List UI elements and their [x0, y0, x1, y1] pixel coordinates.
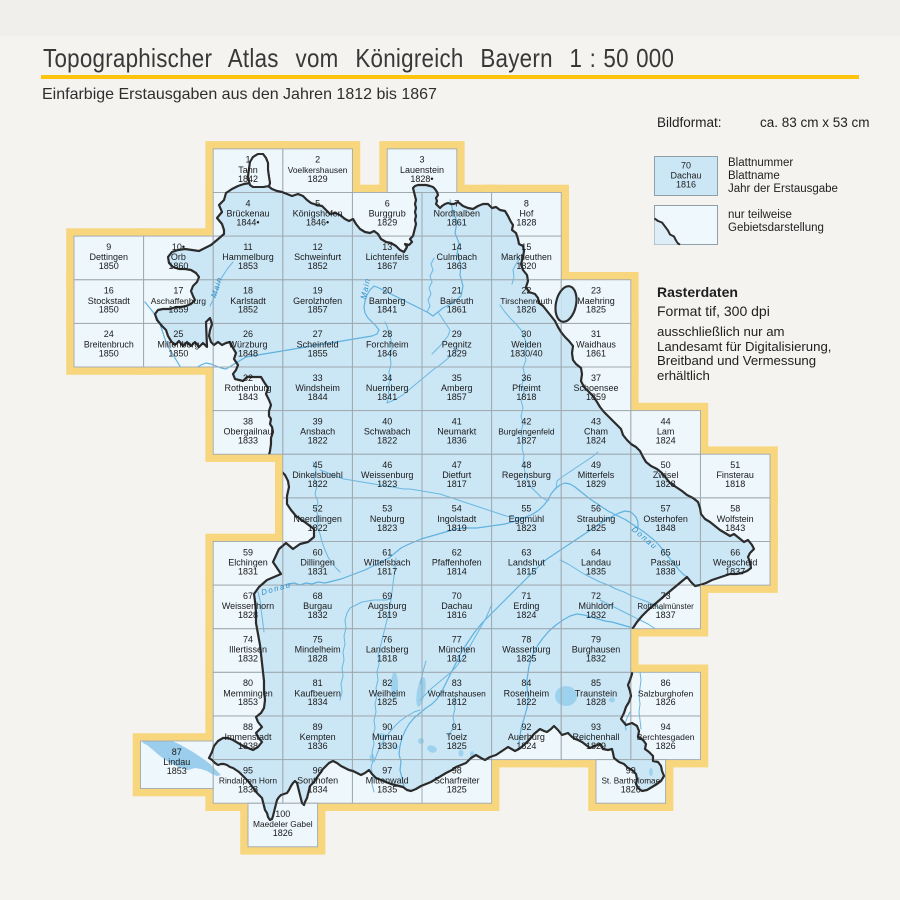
svg-text:19: 19 — [313, 286, 323, 296]
svg-text:34: 34 — [382, 373, 392, 383]
svg-text:1817: 1817 — [377, 566, 397, 576]
svg-text:18: 18 — [243, 286, 253, 296]
svg-text:100: 100 — [275, 809, 290, 819]
svg-text:98: 98 — [452, 765, 462, 775]
svg-text:44: 44 — [661, 416, 671, 426]
svg-text:1825: 1825 — [377, 697, 397, 707]
svg-text:27: 27 — [313, 329, 323, 339]
svg-text:1846: 1846 — [377, 348, 397, 358]
svg-text:1848: 1848 — [238, 348, 258, 358]
svg-text:1857: 1857 — [308, 305, 328, 315]
svg-text:43: 43 — [591, 416, 601, 426]
svg-text:1822: 1822 — [308, 479, 328, 489]
svg-text:1819: 1819 — [447, 523, 467, 533]
svg-text:78: 78 — [521, 635, 531, 645]
svg-text:1838: 1838 — [238, 741, 258, 751]
svg-text:57: 57 — [661, 504, 671, 514]
svg-text:1861: 1861 — [586, 348, 606, 358]
svg-text:33: 33 — [313, 373, 323, 383]
svg-text:53: 53 — [382, 504, 392, 514]
svg-text:1819: 1819 — [377, 610, 397, 620]
svg-text:1: 1 — [245, 155, 250, 165]
svg-text:1831: 1831 — [308, 566, 328, 576]
svg-text:42: 42 — [521, 416, 531, 426]
svg-text:1832: 1832 — [238, 654, 258, 664]
svg-text:1835: 1835 — [586, 566, 606, 576]
svg-text:1825: 1825 — [447, 785, 467, 795]
svg-text:1834: 1834 — [308, 785, 328, 795]
svg-text:85: 85 — [591, 678, 601, 688]
svg-text:1832: 1832 — [586, 654, 606, 664]
svg-text:1836: 1836 — [447, 436, 467, 446]
svg-text:1829: 1829 — [586, 741, 606, 751]
svg-text:11: 11 — [243, 242, 252, 252]
svg-text:14: 14 — [452, 242, 462, 252]
svg-text:1819: 1819 — [516, 479, 536, 489]
svg-text:26: 26 — [243, 329, 253, 339]
svg-text:1815: 1815 — [516, 566, 536, 576]
svg-text:1850: 1850 — [168, 348, 188, 358]
svg-text:1835: 1835 — [377, 785, 397, 795]
svg-text:51: 51 — [730, 460, 740, 470]
svg-text:1857: 1857 — [447, 392, 467, 402]
svg-text:91: 91 — [452, 722, 462, 732]
svg-text:1823: 1823 — [377, 479, 397, 489]
svg-text:1812: 1812 — [447, 654, 467, 664]
svg-text:99: 99 — [626, 765, 636, 775]
svg-text:93: 93 — [591, 722, 601, 732]
svg-text:64: 64 — [591, 547, 601, 557]
svg-text:1861: 1861 — [447, 217, 467, 227]
svg-text:59: 59 — [243, 547, 253, 557]
svg-text:68: 68 — [313, 591, 323, 601]
svg-text:67: 67 — [243, 591, 253, 601]
svg-text:84: 84 — [521, 678, 531, 688]
svg-text:6: 6 — [385, 198, 390, 208]
svg-text:5: 5 — [315, 198, 320, 208]
svg-text:1826: 1826 — [656, 741, 676, 751]
svg-text:17: 17 — [173, 286, 183, 296]
svg-text:1860: 1860 — [168, 261, 188, 271]
svg-text:82: 82 — [382, 678, 392, 688]
svg-text:70: 70 — [681, 161, 691, 171]
svg-text:1825: 1825 — [447, 741, 467, 751]
svg-text:31: 31 — [591, 329, 601, 339]
svg-text:1830: 1830 — [377, 741, 397, 751]
svg-text:1829: 1829 — [377, 217, 397, 227]
svg-text:8: 8 — [524, 198, 529, 208]
svg-text:1817: 1817 — [447, 479, 467, 489]
svg-text:39: 39 — [313, 416, 323, 426]
svg-text:65: 65 — [661, 547, 671, 557]
svg-text:1841: 1841 — [377, 305, 397, 315]
svg-text:1852: 1852 — [238, 305, 258, 315]
svg-text:1837: 1837 — [656, 610, 676, 620]
svg-text:1823: 1823 — [377, 523, 397, 533]
svg-text:1850: 1850 — [99, 305, 119, 315]
svg-text:1828: 1828 — [238, 610, 258, 620]
svg-text:95: 95 — [243, 765, 253, 775]
svg-text:1832: 1832 — [586, 610, 606, 620]
svg-text:87: 87 — [172, 747, 182, 757]
svg-text:86: 86 — [661, 678, 671, 688]
svg-text:80: 80 — [243, 678, 253, 688]
svg-text:47: 47 — [452, 460, 462, 470]
svg-text:1861: 1861 — [447, 305, 467, 315]
svg-text:54: 54 — [452, 504, 462, 514]
svg-text:48: 48 — [521, 460, 531, 470]
svg-text:23: 23 — [591, 286, 601, 296]
svg-text:1814: 1814 — [447, 566, 467, 576]
svg-text:75: 75 — [313, 635, 323, 645]
svg-text:9: 9 — [106, 242, 111, 252]
svg-text:1828: 1828 — [586, 697, 606, 707]
svg-text:1826: 1826 — [656, 697, 676, 707]
svg-text:1824: 1824 — [516, 610, 536, 620]
svg-text:90: 90 — [382, 722, 392, 732]
svg-text:1824: 1824 — [586, 436, 606, 446]
svg-text:1822: 1822 — [308, 436, 328, 446]
svg-text:2: 2 — [315, 155, 320, 165]
svg-text:1850: 1850 — [99, 261, 119, 271]
svg-text:1867: 1867 — [377, 261, 397, 271]
svg-text:10•: 10• — [172, 242, 185, 252]
svg-text:76: 76 — [382, 635, 392, 645]
svg-text:1825: 1825 — [586, 523, 606, 533]
svg-text:1828•: 1828• — [410, 174, 433, 184]
svg-text:58: 58 — [730, 504, 740, 514]
svg-text:81: 81 — [313, 678, 323, 688]
svg-text:24: 24 — [104, 329, 114, 339]
svg-text:1848: 1848 — [656, 523, 676, 533]
svg-text:1822: 1822 — [516, 697, 536, 707]
svg-text:1853: 1853 — [167, 766, 187, 776]
svg-text:1846•: 1846• — [306, 217, 329, 227]
svg-text:69: 69 — [382, 591, 392, 601]
svg-text:1843: 1843 — [725, 523, 745, 533]
svg-text:1844•: 1844• — [236, 217, 259, 227]
svg-text:1826: 1826 — [273, 828, 293, 838]
svg-text:1818: 1818 — [377, 654, 397, 664]
svg-text:89: 89 — [313, 722, 323, 732]
svg-text:72: 72 — [591, 591, 601, 601]
svg-text:1852: 1852 — [308, 261, 328, 271]
svg-text:1832: 1832 — [308, 610, 328, 620]
svg-text:4: 4 — [245, 198, 250, 208]
svg-text:38: 38 — [243, 416, 253, 426]
svg-text:1812: 1812 — [447, 697, 467, 707]
svg-text:35: 35 — [452, 373, 462, 383]
svg-text:1841: 1841 — [377, 392, 397, 402]
svg-text:1816: 1816 — [676, 180, 696, 190]
svg-text:50: 50 — [661, 460, 671, 470]
svg-text:88: 88 — [243, 722, 253, 732]
svg-text:1828: 1828 — [516, 217, 536, 227]
svg-text:70: 70 — [452, 591, 462, 601]
svg-text:1850: 1850 — [99, 348, 119, 358]
svg-text:1838: 1838 — [238, 785, 258, 795]
svg-text:1836: 1836 — [308, 741, 328, 751]
svg-text:1830/40: 1830/40 — [510, 348, 543, 358]
svg-text:1818: 1818 — [516, 392, 536, 402]
svg-text:1842: 1842 — [238, 174, 258, 184]
svg-text:63: 63 — [521, 547, 531, 557]
svg-text:55: 55 — [521, 504, 531, 514]
svg-text:1828: 1828 — [308, 654, 328, 664]
svg-text:77: 77 — [452, 635, 462, 645]
svg-text:1827: 1827 — [516, 436, 536, 446]
svg-text:40: 40 — [382, 416, 392, 426]
svg-text:32: 32 — [243, 373, 253, 383]
svg-text:1829: 1829 — [447, 348, 467, 358]
svg-text:30: 30 — [521, 329, 531, 339]
svg-text:1844: 1844 — [308, 392, 328, 402]
svg-text:52: 52 — [313, 504, 323, 514]
svg-text:1859: 1859 — [586, 392, 606, 402]
svg-text:1825: 1825 — [586, 305, 606, 315]
svg-text:16: 16 — [104, 286, 114, 296]
svg-text:3: 3 — [419, 155, 424, 165]
svg-text:79: 79 — [591, 635, 601, 645]
svg-text:41: 41 — [452, 416, 462, 426]
svg-text:61: 61 — [382, 547, 392, 557]
svg-text:7: 7 — [454, 198, 459, 208]
svg-text:15: 15 — [521, 242, 531, 252]
svg-text:20: 20 — [382, 286, 392, 296]
svg-text:25: 25 — [173, 329, 183, 339]
svg-text:1818: 1818 — [725, 479, 745, 489]
svg-text:28: 28 — [382, 329, 392, 339]
svg-text:1816: 1816 — [447, 610, 467, 620]
svg-text:73: 73 — [661, 591, 671, 601]
svg-text:1824: 1824 — [656, 436, 676, 446]
svg-text:1829: 1829 — [308, 174, 328, 184]
svg-text:66: 66 — [730, 547, 740, 557]
svg-text:71: 71 — [521, 591, 531, 601]
svg-text:1859: 1859 — [168, 305, 188, 315]
svg-text:56: 56 — [591, 504, 601, 514]
svg-text:1824: 1824 — [516, 741, 536, 751]
svg-text:62: 62 — [452, 547, 462, 557]
svg-text:1853: 1853 — [238, 697, 258, 707]
svg-text:46: 46 — [382, 460, 392, 470]
svg-text:74: 74 — [243, 635, 253, 645]
svg-text:1825: 1825 — [516, 654, 536, 664]
svg-text:1833: 1833 — [238, 436, 258, 446]
svg-text:45: 45 — [313, 460, 323, 470]
svg-text:1843: 1843 — [238, 392, 258, 402]
svg-text:12: 12 — [313, 242, 323, 252]
svg-text:1855: 1855 — [308, 348, 328, 358]
svg-text:97: 97 — [382, 765, 392, 775]
svg-text:60: 60 — [313, 547, 323, 557]
svg-text:94: 94 — [661, 722, 671, 732]
svg-text:83: 83 — [452, 678, 462, 688]
svg-text:1826: 1826 — [516, 305, 536, 315]
svg-text:92: 92 — [521, 722, 531, 732]
svg-text:1829: 1829 — [586, 479, 606, 489]
svg-text:1863: 1863 — [447, 261, 467, 271]
svg-text:37: 37 — [591, 373, 601, 383]
svg-text:1853: 1853 — [238, 261, 258, 271]
svg-text:22: 22 — [521, 286, 531, 296]
svg-text:29: 29 — [452, 329, 462, 339]
svg-text:1837: 1837 — [725, 566, 745, 576]
svg-text:13: 13 — [382, 242, 392, 252]
svg-text:21: 21 — [452, 286, 462, 296]
svg-text:1828: 1828 — [656, 479, 676, 489]
svg-text:1838: 1838 — [656, 566, 676, 576]
svg-text:1820: 1820 — [516, 261, 536, 271]
svg-text:36: 36 — [521, 373, 531, 383]
svg-text:1822: 1822 — [377, 436, 397, 446]
svg-text:96: 96 — [313, 765, 323, 775]
svg-text:1823: 1823 — [516, 523, 536, 533]
svg-text:49: 49 — [591, 460, 601, 470]
svg-text:1826: 1826 — [621, 785, 641, 795]
svg-text:1834: 1834 — [308, 697, 328, 707]
svg-text:1831: 1831 — [238, 566, 258, 576]
svg-text:1822: 1822 — [308, 523, 328, 533]
